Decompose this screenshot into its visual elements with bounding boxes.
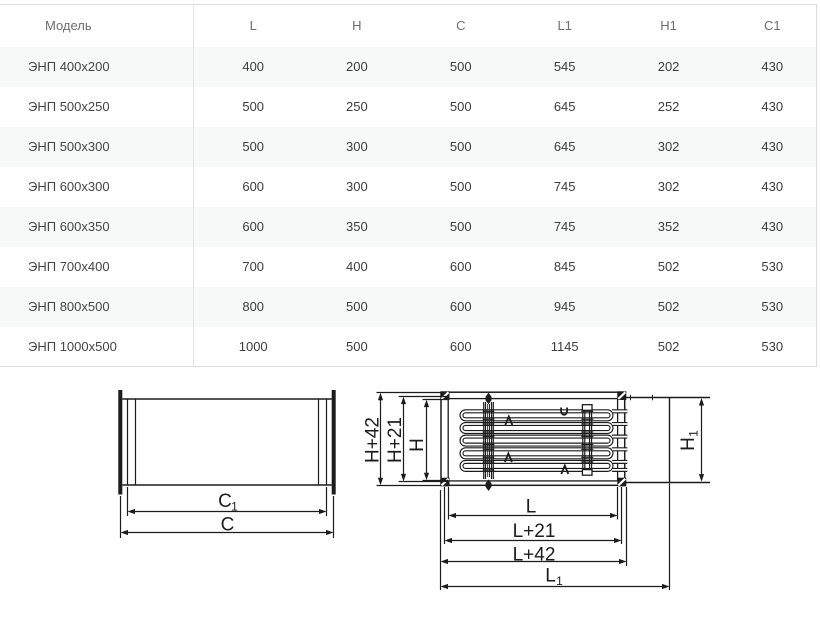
svg-text:L: L [526, 497, 537, 518]
svg-text:1: 1 [687, 430, 701, 437]
svg-text:L+21: L+21 [513, 521, 556, 542]
svg-text:C: C [218, 491, 232, 512]
svg-text:L: L [545, 566, 556, 587]
svg-text:H: H [407, 438, 428, 452]
svg-text:C: C [221, 515, 235, 536]
svg-text:1: 1 [556, 574, 563, 588]
svg-text:H+42: H+42 [363, 417, 384, 463]
svg-text:H: H [678, 437, 699, 451]
svg-text:L+42: L+42 [513, 545, 556, 566]
svg-text:H+21: H+21 [385, 417, 406, 463]
svg-text:1: 1 [231, 500, 238, 514]
